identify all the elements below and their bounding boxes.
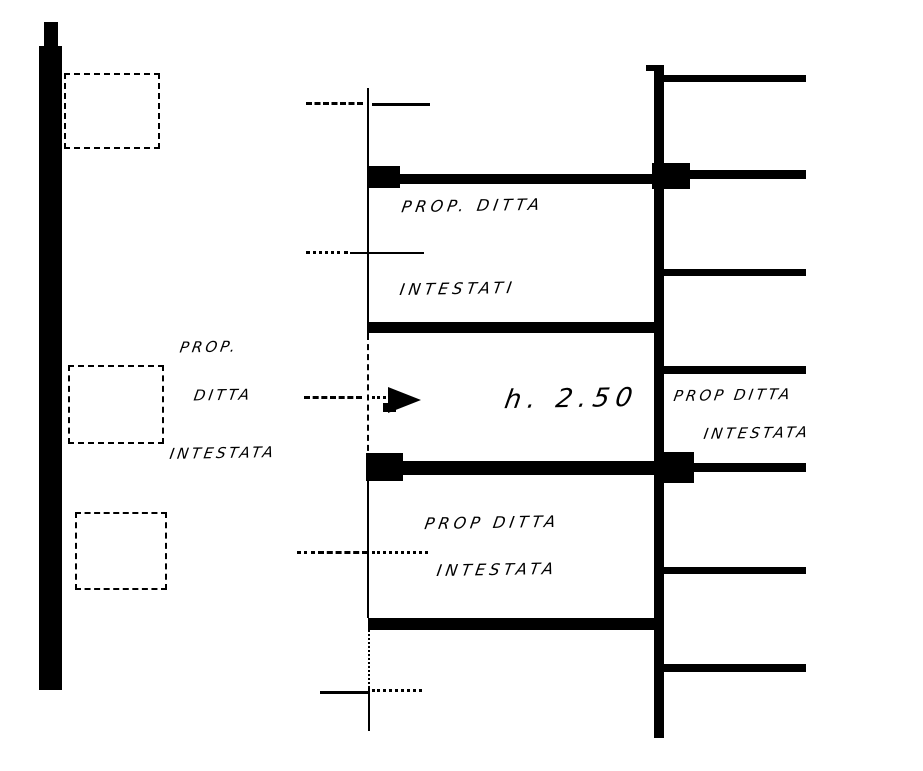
wall-lower-room-bottom [368, 618, 662, 630]
centerline-4-dashed [318, 551, 368, 554]
upper-room-label-line2: INTESTATI [398, 278, 517, 299]
centerline-4-dotted-right [372, 551, 428, 554]
left-boundary-line-lower [367, 475, 369, 618]
centerline-2-solid [350, 252, 424, 254]
wall-middle-room-bottom [366, 461, 666, 475]
centerline-1-dashed [306, 102, 363, 105]
right-extension-line [664, 567, 806, 574]
dashed-square-bottom [75, 512, 167, 590]
scan-edge-bar [39, 46, 62, 690]
right-extension-line [664, 170, 806, 179]
right-extension-line [664, 75, 806, 82]
lower-room-label-line1: PROP DITTA [423, 512, 561, 533]
right-extension-line [664, 366, 806, 374]
lower-room-label-line2: INTESTATA [435, 559, 558, 580]
centerline-5-solid [320, 691, 368, 694]
centerline-4-dotted-left [297, 551, 315, 554]
leader-arrow-tail [383, 403, 396, 412]
scanned-plan-sheet: PROP. DITTA INTESTATI h. 2.50 PROP DITTA… [0, 0, 923, 771]
left-annotation-line3: INTESTATA [168, 443, 277, 463]
left-boundary-line-middle-dashed [367, 334, 369, 461]
left-boundary-line-upper [367, 88, 369, 334]
right-annotation-line2: INTESTATA [702, 423, 811, 443]
right-extension-line [664, 269, 806, 276]
wall-upper-room-bottom [367, 322, 664, 333]
centerline-5-dotted [372, 689, 422, 692]
centerline-1-solid [372, 103, 430, 106]
middle-room-height-note: h. 2.50 [502, 383, 640, 415]
right-extension-line [664, 664, 806, 672]
wall-joint-upper-left [367, 166, 400, 188]
centerline-3-dashed [304, 396, 362, 399]
wall-joint-middle-left [366, 453, 403, 481]
left-annotation-line2: DITTA [192, 385, 253, 404]
wall-upper-room-top [367, 174, 664, 184]
upper-room-label-line1: PROP. DITTA [400, 195, 544, 216]
left-boundary-line-end [368, 688, 370, 731]
right-wall-cap [646, 65, 664, 71]
dashed-square-middle [68, 365, 164, 444]
right-extension-line [664, 463, 806, 472]
centerline-3-dotted [372, 396, 386, 399]
dashed-square-top [64, 73, 160, 149]
left-annotation-line1: PROP. [178, 337, 239, 356]
right-annotation-line1: PROP DITTA [672, 385, 793, 405]
centerline-2-dotted [306, 251, 348, 254]
left-boundary-line-dotted [368, 630, 370, 688]
